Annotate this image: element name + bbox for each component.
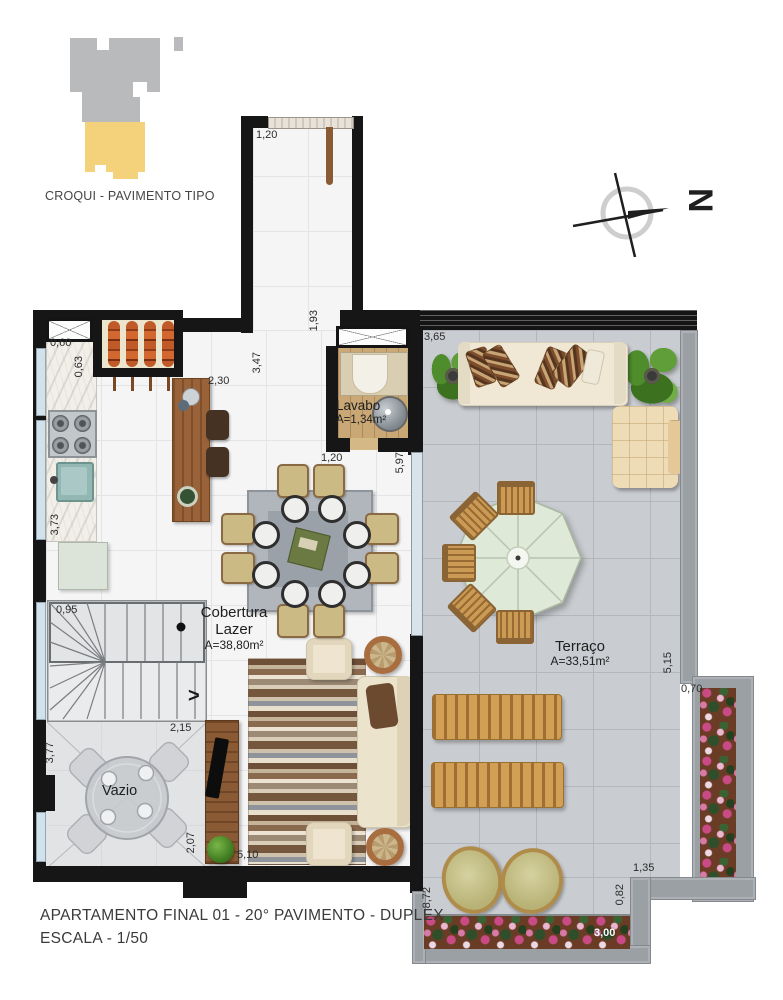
entry-wall-stub (253, 116, 268, 128)
wall-interior-right (410, 634, 423, 893)
dimension-label: 0,82 (615, 884, 626, 905)
grill-wall-top (93, 310, 183, 320)
dimension-label: 1,35 (633, 863, 654, 874)
bar-stool (206, 410, 229, 440)
window (36, 602, 46, 720)
north-arrow: N (565, 160, 715, 270)
entry-door-leaf (326, 127, 333, 185)
dimension-label: 0,60 (50, 338, 71, 349)
lavabo-area: A=1,34m² (336, 414, 386, 427)
dimension-label: 2,07 (186, 832, 197, 853)
terraco-name: Terraço (518, 638, 642, 655)
room-label-vazio: Vazio (102, 783, 137, 800)
terrace-wall-top (420, 310, 697, 330)
dimension-label: 5,15 (663, 652, 674, 673)
room-label-terraco: Terraço A=33,51m² (518, 638, 642, 669)
sun-lounger (432, 694, 562, 740)
place-setting (281, 495, 309, 523)
cobertura-name-line2: Lazer (178, 621, 290, 638)
dimension-label: 1,20 (256, 130, 277, 141)
grill-wall-bottom (93, 368, 183, 377)
grill-skewer (108, 321, 120, 367)
dimension-label: 8,72 (422, 887, 433, 908)
sliding-glass-door (411, 452, 423, 636)
lavabo-door-threshold (350, 438, 378, 450)
skewer-handle (167, 377, 170, 391)
dimension-label: 0,63 (74, 356, 85, 377)
grill-wall-right (174, 310, 183, 376)
dimension-label: 5,10 (237, 850, 258, 861)
terrace-parapet-right (680, 330, 698, 684)
dining-chair (313, 604, 345, 638)
terraco-area: A=33,51m² (518, 655, 642, 669)
dimension-label: 1,93 (309, 310, 320, 331)
dining-chair (365, 513, 399, 545)
potted-plant (207, 836, 234, 863)
skewer-handle (113, 377, 116, 391)
place-setting (318, 495, 346, 523)
grill-skewer (144, 321, 156, 367)
cooktop-burner (74, 437, 91, 454)
patio-chair (442, 544, 476, 582)
sheet-title: APARTAMENTO FINAL 01 - 20° PAVIMENTO - D… (40, 907, 444, 925)
flower-planter-right (700, 688, 736, 882)
wall-grill-corridor (183, 318, 253, 332)
cobertura-area: A=38,80m² (178, 639, 290, 653)
entry-threshold (268, 117, 354, 129)
side-table-bottom (366, 828, 404, 866)
armchair-top (306, 638, 352, 680)
lavabo-wall-bottom-right (378, 438, 423, 452)
shaft-hatched-box (336, 326, 409, 348)
sofa-throw-blanket (365, 682, 399, 729)
north-letter: N (681, 188, 715, 213)
window (36, 348, 46, 416)
vazio-name: Vazio (102, 783, 137, 800)
dimension-label: 3,73 (50, 514, 61, 535)
side-table-top (364, 636, 402, 674)
dining-chair (313, 464, 345, 498)
dimension-label: 2,30 (208, 376, 229, 387)
dimension-label: 0,70 (681, 684, 702, 695)
lavabo-wall-right (408, 310, 423, 455)
place-setting (252, 561, 280, 589)
cooktop-burner (74, 415, 91, 432)
corridor-wall-right (352, 116, 363, 315)
dimension-label: 3,47 (252, 352, 263, 373)
bar-decor-plate (177, 486, 198, 507)
skewer-handle (131, 377, 134, 391)
terrace-plant-pot (644, 368, 660, 384)
wall-left-column (33, 775, 55, 811)
armchair-bottom (306, 822, 352, 866)
croqui-caption: CROQUI - PAVIMENTO TIPO (45, 189, 215, 203)
corridor-wall-left (241, 116, 253, 333)
room-label-cobertura: Cobertura Lazer A=38,80m² (178, 604, 290, 652)
blender-base (178, 400, 189, 411)
sun-lounger (431, 762, 564, 808)
lavabo-vanity-bowl (352, 354, 388, 394)
bar-stool (206, 447, 229, 477)
place-setting (343, 521, 371, 549)
croqui-unit-highlight (85, 122, 145, 172)
sink-faucet (50, 476, 58, 484)
croqui-unit-step (113, 170, 138, 179)
croqui-notch-top (97, 38, 109, 50)
wall-bottom-stub (183, 878, 247, 898)
croqui-building-annex (174, 37, 183, 51)
dining-chair (277, 464, 309, 498)
sofa-backrest (397, 676, 411, 826)
dimension-label: 5,97 (395, 452, 406, 473)
sheet-scale: ESCALA - 1/50 (40, 930, 148, 948)
floorplan-sheet: CROQUI - PAVIMENTO TIPO N (0, 0, 783, 1000)
lavabo-name: Lavabo (336, 398, 386, 414)
place-setting (343, 561, 371, 589)
corridor-floor (253, 121, 352, 336)
patio-chair (497, 481, 535, 515)
dimension-label: 1,20 (321, 453, 342, 464)
dimension-label: 3,65 (424, 332, 445, 343)
lavabo-wall-bottom-left (326, 438, 350, 452)
kitchen-cabinet (58, 542, 108, 590)
cooktop-burner (52, 415, 69, 432)
kitchen-sink-basin (61, 467, 87, 495)
umbrella-pole (516, 556, 521, 561)
grill-wall-left (93, 310, 102, 376)
room-label-lavabo: Lavabo A=1,34m² (336, 398, 386, 427)
stair-direction-arrow: > (188, 685, 200, 707)
dimension-label: 2,15 (170, 723, 191, 734)
dining-chair (221, 513, 255, 545)
grill-skewer (162, 321, 174, 367)
window (36, 420, 46, 540)
skewer-handle (149, 377, 152, 391)
grill-skewer (126, 321, 138, 367)
croqui-notch-bottom (95, 165, 106, 173)
outdoor-sofa-armrest (614, 342, 626, 404)
cooktop-burner (52, 437, 69, 454)
place-setting (252, 521, 280, 549)
window (36, 812, 46, 862)
cobertura-name-line1: Cobertura (178, 604, 290, 621)
dimension-label: 0,95 (56, 605, 77, 616)
place-setting (318, 580, 346, 608)
croqui-notch-right (133, 82, 147, 97)
dining-chair (221, 552, 255, 584)
croqui-building-lower (82, 92, 140, 122)
dimension-label: 3,77 (45, 742, 56, 763)
dimension-label: 3,00 (594, 928, 615, 939)
